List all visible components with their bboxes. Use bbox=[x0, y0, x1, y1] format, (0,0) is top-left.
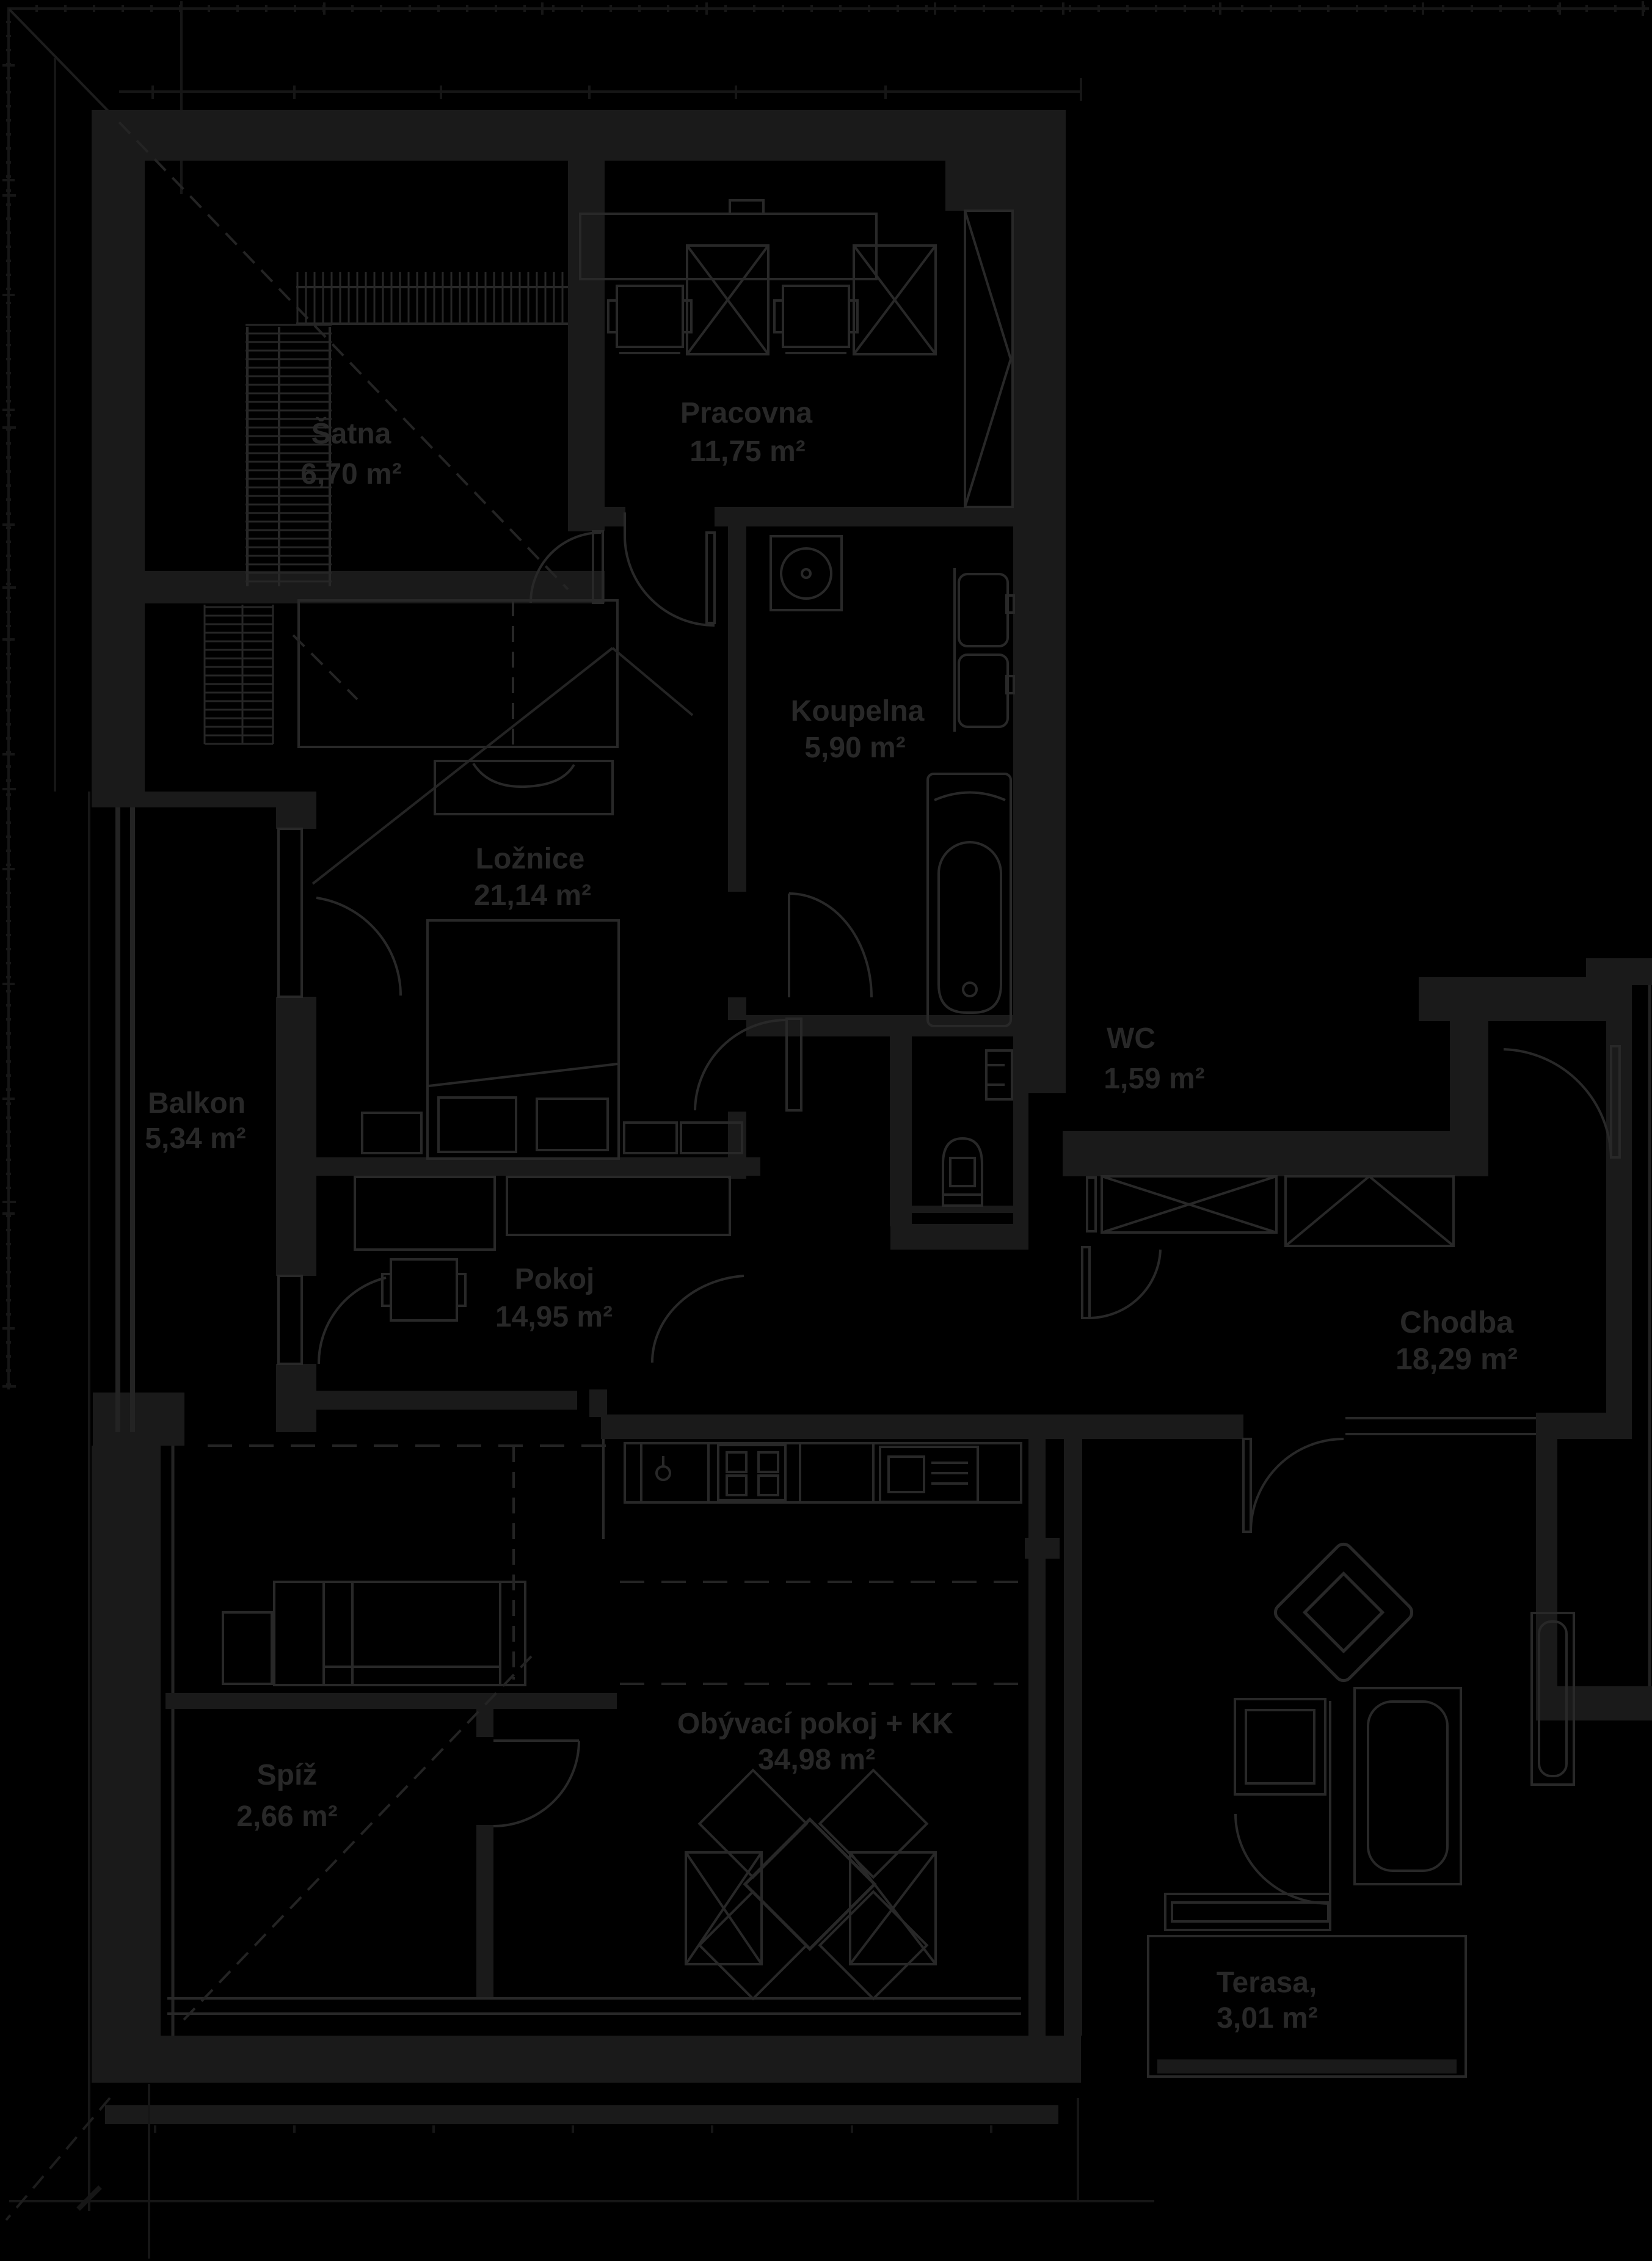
svg-text:Terasa,: Terasa, bbox=[1217, 1967, 1317, 1999]
svg-text:Ložnice: Ložnice bbox=[476, 843, 585, 875]
svg-text:3,01 m²: 3,01 m² bbox=[1217, 2002, 1317, 2034]
svg-text:21,14 m²: 21,14 m² bbox=[474, 879, 591, 912]
svg-text:Šatna: Šatna bbox=[311, 417, 391, 450]
svg-text:Koupelna: Koupelna bbox=[791, 695, 925, 727]
svg-text:11,75 m²: 11,75 m² bbox=[690, 435, 805, 468]
svg-text:2,66 m²: 2,66 m² bbox=[236, 1800, 337, 1833]
svg-text:18,29 m²: 18,29 m² bbox=[1395, 1342, 1518, 1376]
svg-text:5,90 m²: 5,90 m² bbox=[804, 732, 905, 764]
svg-text:WC: WC bbox=[1107, 1022, 1155, 1055]
svg-text:34,98 m²: 34,98 m² bbox=[758, 1744, 875, 1776]
svg-text:6,70 m²: 6,70 m² bbox=[300, 458, 401, 490]
svg-text:14,95 m²: 14,95 m² bbox=[495, 1301, 613, 1333]
svg-text:Pokoj: Pokoj bbox=[515, 1263, 595, 1295]
svg-text:5,34 m²: 5,34 m² bbox=[145, 1123, 246, 1155]
svg-text:Pracovna: Pracovna bbox=[680, 397, 812, 429]
svg-text:Spíž: Spíž bbox=[257, 1759, 318, 1791]
svg-text:Balkon: Balkon bbox=[148, 1087, 246, 1120]
svg-text:Chodba: Chodba bbox=[1400, 1305, 1514, 1339]
svg-text:Obývací pokoj + KK: Obývací pokoj + KK bbox=[677, 1708, 953, 1740]
svg-text:1,59 m²: 1,59 m² bbox=[1104, 1063, 1204, 1095]
